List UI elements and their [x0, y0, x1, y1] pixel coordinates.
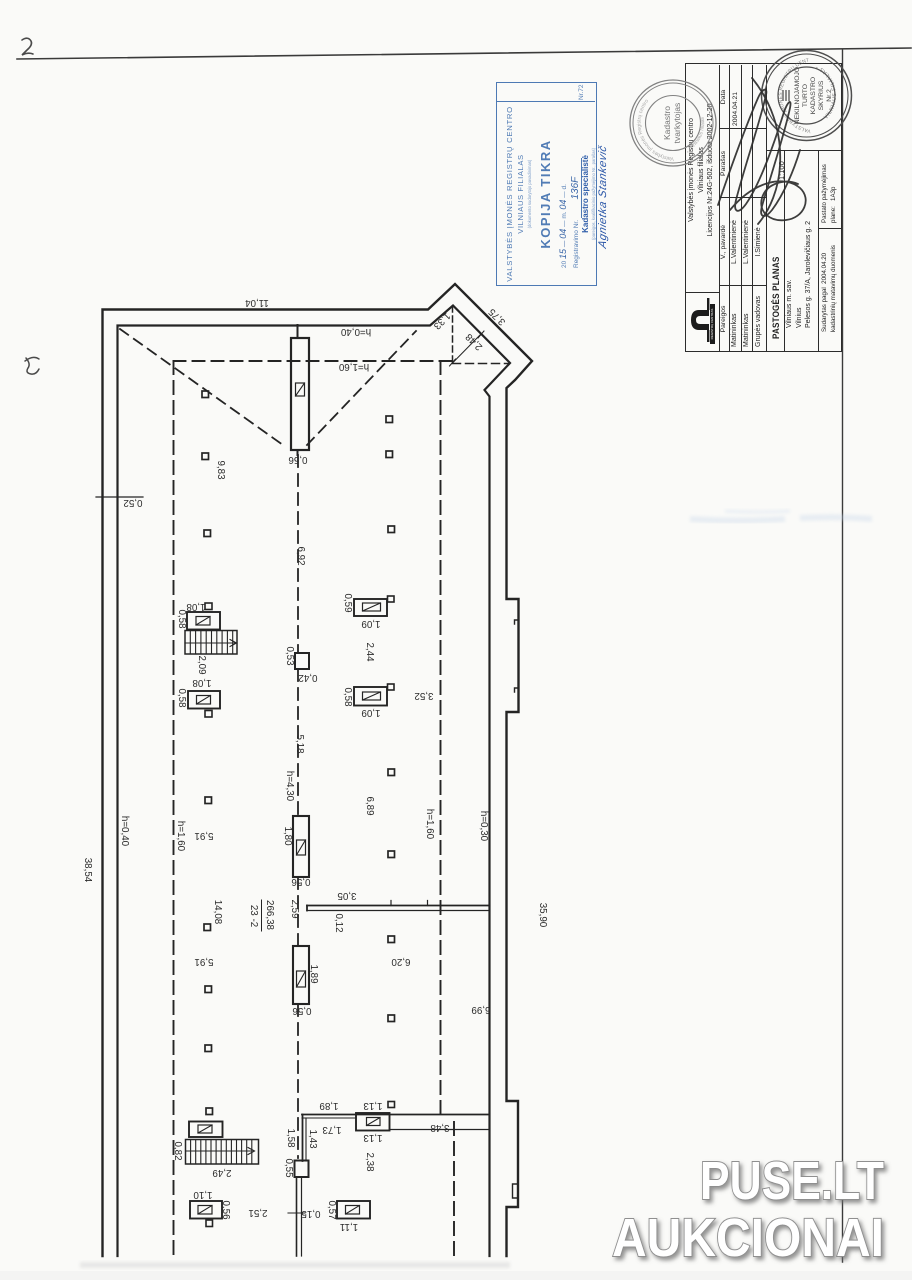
svg-text:h=0,40: h=0,40	[340, 326, 371, 337]
svg-text:1,73: 1,73	[322, 1124, 342, 1135]
svg-text:1,58: 1,58	[285, 1128, 296, 1148]
svg-text:38,54: 38,54	[82, 858, 93, 883]
svg-text:35,90: 35,90	[537, 903, 548, 928]
svg-text:5,91: 5,91	[194, 956, 213, 967]
svg-text:h=1,60: h=1,60	[338, 361, 369, 372]
svg-text:2,44: 2,44	[364, 642, 375, 662]
svg-text:0,53: 0,53	[284, 646, 295, 666]
svg-text:0,56: 0,56	[291, 876, 311, 887]
svg-text:2,51: 2,51	[248, 1207, 267, 1218]
svg-text:1,08: 1,08	[186, 601, 206, 612]
svg-text:2,49: 2,49	[212, 1167, 231, 1178]
svg-text:3,48: 3,48	[430, 1122, 450, 1133]
svg-text:1,13: 1,13	[363, 1100, 383, 1111]
svg-text:6,20: 6,20	[391, 956, 411, 967]
svg-text:h=0,40: h=0,40	[119, 816, 130, 847]
svg-text:0,52: 0,52	[123, 497, 142, 508]
svg-text:3,75: 3,75	[486, 306, 508, 328]
svg-text:Kadastro: Kadastro	[662, 106, 672, 140]
svg-text:tvarkytojas: tvarkytojas	[672, 103, 682, 144]
svg-text:1,08: 1,08	[192, 677, 212, 688]
svg-text:1,80: 1,80	[282, 826, 293, 846]
svg-text:h=0,30: h=0,30	[478, 811, 489, 842]
svg-text:AUKCIONAI: AUKCIONAI	[612, 1208, 884, 1268]
svg-text:0,15: 0,15	[301, 1208, 321, 1219]
svg-text:0,58: 0,58	[176, 609, 187, 629]
svg-text:0,56: 0,56	[292, 1005, 312, 1016]
svg-text:2,59: 2,59	[289, 899, 300, 918]
svg-text:0,58: 0,58	[342, 687, 353, 707]
svg-text:6,99: 6,99	[471, 1004, 490, 1015]
svg-text:0,56: 0,56	[288, 454, 308, 465]
svg-text:1,09: 1,09	[361, 618, 380, 629]
svg-text:2,38: 2,38	[364, 1152, 375, 1172]
svg-text:3,05: 3,05	[337, 890, 357, 901]
svg-text:5,18: 5,18	[294, 734, 305, 754]
svg-text:0,58: 0,58	[176, 688, 187, 708]
svg-text:0,55: 0,55	[283, 1158, 294, 1178]
svg-text:6,89: 6,89	[364, 796, 375, 815]
svg-text:1,89: 1,89	[319, 1100, 338, 1111]
svg-text:1,10: 1,10	[193, 1189, 213, 1200]
svg-text:6,92: 6,92	[295, 546, 306, 565]
svg-text:3,52: 3,52	[414, 690, 433, 701]
svg-text:1,11: 1,11	[340, 1221, 358, 1232]
svg-text:h=4,30: h=4,30	[284, 771, 295, 802]
svg-text:0,59: 0,59	[342, 593, 353, 612]
svg-text:266,38: 266,38	[264, 900, 275, 931]
svg-text:0,56: 0,56	[220, 1200, 231, 1220]
svg-text:0,12: 0,12	[333, 913, 344, 932]
svg-text:0,57: 0,57	[326, 1200, 337, 1219]
svg-text:PUSE.LT: PUSE.LT	[700, 1151, 884, 1211]
svg-text:14,08: 14,08	[212, 900, 223, 925]
svg-text:1,43: 1,43	[307, 1129, 318, 1149]
svg-text:0,82: 0,82	[172, 1141, 183, 1160]
svg-text:2,09: 2,09	[196, 655, 207, 674]
svg-text:1,09: 1,09	[361, 707, 380, 718]
svg-text:1,89: 1,89	[308, 964, 319, 983]
svg-text:0,42: 0,42	[298, 672, 317, 683]
svg-text:h=1,60: h=1,60	[175, 821, 186, 852]
svg-text:11,04: 11,04	[245, 297, 269, 308]
svg-text:1,13: 1,13	[363, 1132, 383, 1143]
svg-text:23 -2: 23 -2	[248, 905, 259, 927]
svg-text:h=1,60: h=1,60	[424, 809, 435, 840]
svg-text:1,33: 1,33	[431, 310, 453, 332]
svg-text:9,83: 9,83	[215, 460, 226, 480]
svg-text:5,91: 5,91	[194, 830, 213, 841]
